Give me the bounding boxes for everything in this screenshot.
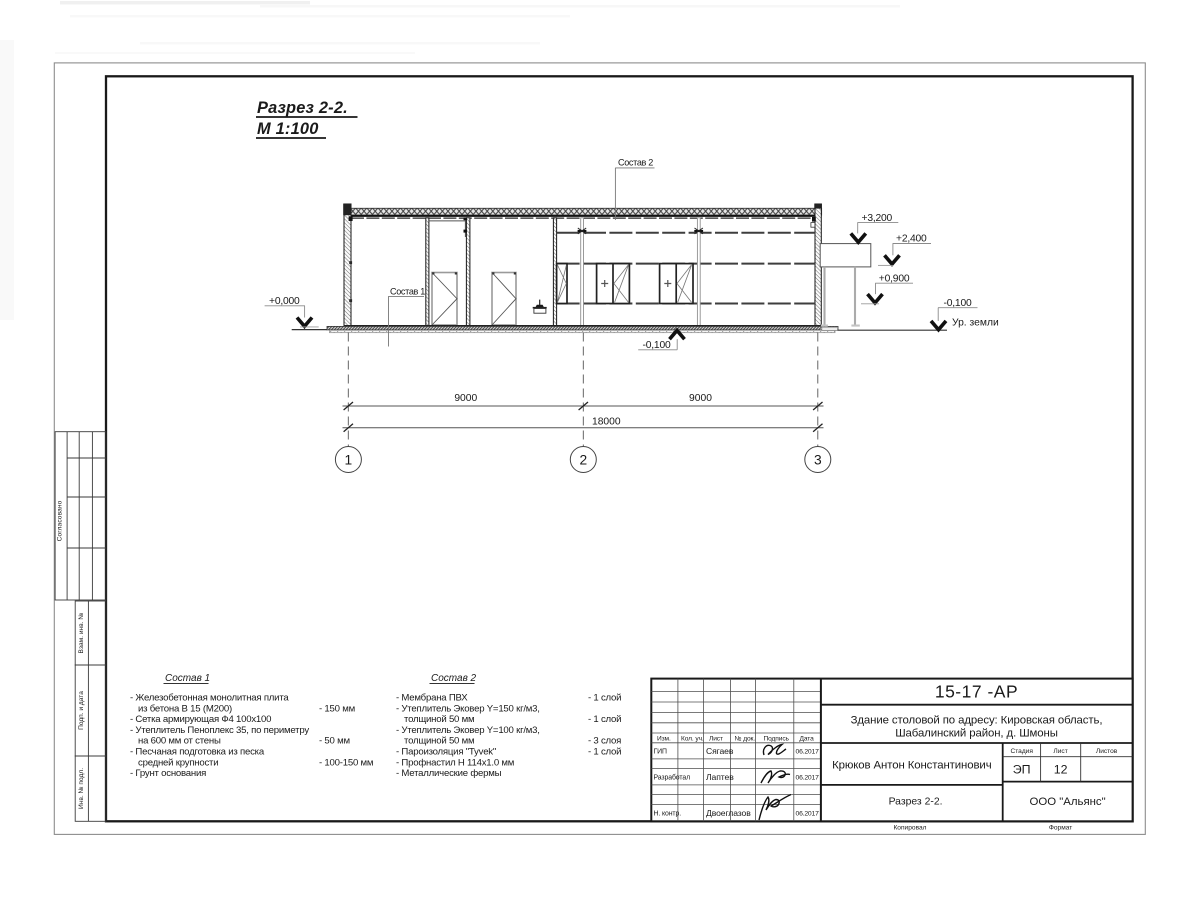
svg-text:- Утеплитель Эковер Y=150 кг/м: - Утеплитель Эковер Y=150 кг/м3, — [396, 703, 540, 714]
svg-text:- 3 слоя: - 3 слоя — [588, 736, 621, 747]
svg-text:9000: 9000 — [689, 393, 712, 404]
svg-text:Взам. инв. №: Взам. инв. № — [78, 613, 85, 654]
svg-text:- Металлические фермы: - Металлические фермы — [396, 768, 502, 779]
svg-text:Инв. № подл.: Инв. № подл. — [78, 768, 85, 809]
svg-text:ООО "Альянс": ООО "Альянс" — [1030, 796, 1106, 808]
svg-text:- 1 слой: - 1 слой — [588, 747, 621, 758]
svg-text:на 600 мм от стены: на 600 мм от стены — [138, 736, 221, 747]
svg-text:- Песчаная подготовка из песка: - Песчаная подготовка из песка — [130, 747, 265, 758]
svg-text:- 150 мм: - 150 мм — [319, 703, 355, 714]
svg-text:Листов: Листов — [1096, 748, 1118, 755]
svg-text:1: 1 — [345, 452, 353, 467]
svg-text:Кол. уч.: Кол. уч. — [681, 735, 704, 742]
svg-text:средней крупности: средней крупности — [138, 757, 218, 768]
svg-text:- Грунт основания: - Грунт основания — [130, 768, 206, 779]
svg-text:ГИП: ГИП — [654, 749, 667, 756]
svg-text:2: 2 — [579, 452, 587, 467]
svg-text:Разрез 2-2.: Разрез 2-2. — [889, 797, 943, 808]
svg-text:Крюков Антон Константинович: Крюков Антон Константинович — [832, 759, 992, 771]
svg-text:Состав 1: Состав 1 — [165, 673, 210, 684]
svg-text:Разрез 2-2.: Разрез 2-2. — [257, 99, 348, 117]
svg-text:15-17 -АР: 15-17 -АР — [935, 682, 1018, 702]
svg-text:3: 3 — [814, 452, 822, 467]
svg-text:- 100-150 мм: - 100-150 мм — [319, 757, 373, 768]
svg-text:Стадия: Стадия — [1010, 748, 1033, 755]
svg-text:из бетона В 15 (М200): из бетона В 15 (М200) — [138, 703, 232, 714]
svg-text:06.2017: 06.2017 — [796, 775, 820, 782]
svg-text:18000: 18000 — [592, 416, 621, 427]
svg-text:9000: 9000 — [454, 393, 477, 404]
svg-text:М 1:100: М 1:100 — [257, 120, 319, 138]
svg-text:- Сетка армирующая Ф4 100х100: - Сетка армирующая Ф4 100х100 — [130, 714, 271, 725]
svg-text:Копировал: Копировал — [893, 825, 926, 832]
svg-text:Состав 2: Состав 2 — [431, 673, 477, 684]
svg-text:Здание столовой по адресу: Кир: Здание столовой по адресу: Кировская обл… — [851, 714, 1103, 726]
svg-text:Шабалинский район, д. Шмоны: Шабалинский район, д. Шмоны — [895, 728, 1058, 740]
svg-text:- Мембрана ПВХ: - Мембрана ПВХ — [396, 693, 468, 704]
svg-text:толщиной 50 мм: толщиной 50 мм — [404, 736, 474, 747]
svg-text:06.2017: 06.2017 — [796, 749, 820, 756]
svg-text:№ док.: № док. — [735, 735, 756, 742]
svg-text:Разработал: Разработал — [654, 774, 691, 782]
svg-text:Лист: Лист — [709, 735, 723, 742]
svg-text:Дата: Дата — [800, 735, 815, 742]
svg-text:12: 12 — [1054, 763, 1068, 777]
svg-text:- Утеплитель Пеноплекс 35, по: - Утеплитель Пеноплекс 35, по периметру — [130, 725, 309, 736]
svg-text:06.2017: 06.2017 — [796, 811, 820, 818]
svg-text:-0,100: -0,100 — [944, 298, 972, 309]
svg-text:Двоеглазов: Двоеглазов — [706, 808, 751, 818]
svg-text:-0,100: -0,100 — [643, 340, 671, 351]
svg-text:толщиной 50 мм: толщиной 50 мм — [404, 714, 474, 725]
svg-text:- Железобетонная монолитная п: - Железобетонная монолитная плита — [130, 693, 289, 704]
svg-text:Согласовано: Согласовано — [57, 500, 64, 541]
svg-text:- Профнастил Н 114х1.0 мм: - Профнастил Н 114х1.0 мм — [396, 757, 514, 768]
svg-text:Н. контр.: Н. контр. — [654, 811, 682, 818]
svg-text:- 1 слой: - 1 слой — [588, 714, 621, 725]
svg-text:Лаптев: Лаптев — [706, 772, 734, 782]
svg-text:Подпись: Подпись — [764, 735, 790, 742]
svg-text:- Утеплитель Эковер Y=100 кг/м: - Утеплитель Эковер Y=100 кг/м3, — [396, 725, 540, 736]
svg-text:Подп. и дата: Подп. и дата — [78, 691, 85, 730]
svg-text:Ур. земли: Ур. земли — [952, 318, 999, 329]
svg-text:Состав 1: Состав 1 — [390, 286, 425, 296]
svg-text:+2,400: +2,400 — [896, 234, 927, 245]
svg-text:Состав 2: Состав 2 — [618, 158, 653, 168]
svg-text:ЭП: ЭП — [1013, 763, 1031, 777]
svg-text:- Пароизоляция "Tyvek": - Пароизоляция "Tyvek" — [396, 747, 496, 758]
svg-text:Сягаев: Сягаев — [706, 746, 734, 756]
svg-text:- 1 слой: - 1 слой — [588, 693, 621, 704]
svg-text:Изм.: Изм. — [657, 735, 671, 742]
svg-text:Формат: Формат — [1049, 825, 1072, 832]
svg-text:Лист: Лист — [1053, 748, 1067, 755]
svg-text:- 50 мм: - 50 мм — [319, 736, 350, 747]
